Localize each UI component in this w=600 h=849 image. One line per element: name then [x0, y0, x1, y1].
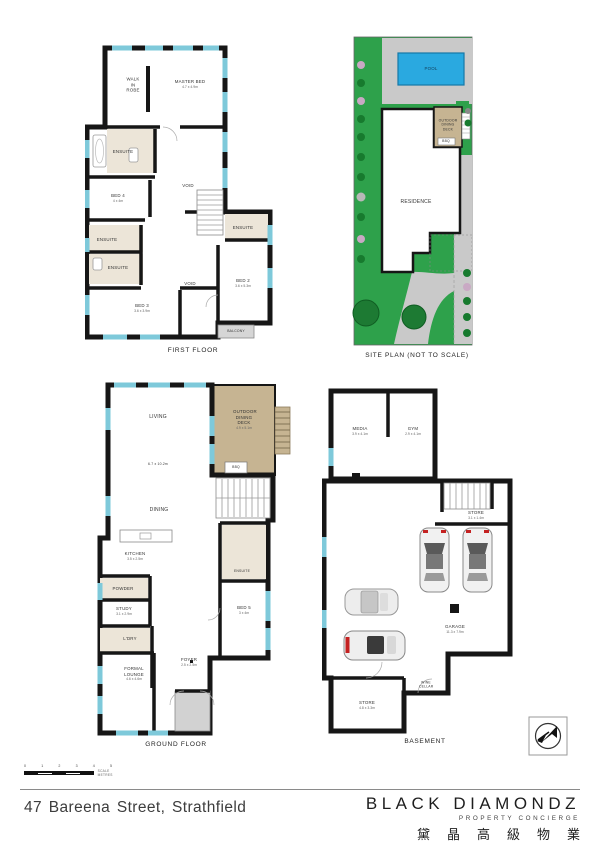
room-dim: 2.9 x 4.1m: [405, 432, 421, 436]
north-compass-icon: [528, 716, 568, 756]
scale-tick: 5: [110, 764, 112, 768]
room-label-master-bed: MASTER BED4.7 x 4.9m: [175, 79, 206, 89]
room-name: STUDY: [116, 606, 132, 611]
room-name: OUTDOOR DINING DECK: [233, 409, 257, 425]
room-label-study: STUDY3.1 x 2.9m: [116, 606, 132, 616]
room-label-gym: GYM2.9 x 4.1m: [405, 426, 421, 436]
car-icon: [345, 589, 398, 615]
bathtub-icon: [93, 135, 106, 167]
room-name: KITCHEN: [125, 551, 146, 556]
room-label-media: MEDIA3.9 x 4.1m: [352, 426, 368, 436]
room-dim: 4.9 x 5.1m: [233, 426, 255, 430]
sink-icon: [140, 533, 151, 539]
room-dim: 3.1 x 1.4m: [468, 516, 484, 520]
room-label-garage: GARAGE11.3 x 7.9m: [445, 624, 465, 634]
room-dim: 11.3 x 7.9m: [445, 630, 465, 634]
room-dim: 3.9 x 4.1m: [352, 432, 368, 436]
floor-plan-basement: MEDIA3.9 x 4.1m GYM2.9 x 4.1m STORE3.1 x…: [322, 382, 517, 742]
residence-label: RESIDENCE: [401, 199, 432, 206]
room-label-ensuite: ENSUITE: [97, 237, 117, 243]
caption-site-plan: SITE PLAN (NOT TO SCALE): [365, 352, 469, 359]
caption-first-floor: FIRST FLOOR: [168, 347, 219, 354]
scale-tick: 4: [93, 764, 95, 768]
room-label-balcony: BALCONY: [227, 329, 245, 333]
stairs: [197, 190, 223, 235]
caption-basement: BASEMENT: [404, 738, 445, 745]
brand-logo: BLACK DIAMONDZ PROPERTY CONCIERGE 黛晶高級物業: [366, 794, 580, 843]
room-dim: 3 x 4m: [237, 611, 251, 615]
room-dim: 3.6 x 5.3m: [235, 284, 251, 288]
floor-plan-first-floor: WALK IN ROBE MASTER BED4.7 x 4.9m ENSUIT…: [85, 40, 280, 340]
room-dim: 3.5 x 2.5m: [125, 557, 146, 561]
site-plan-drawing: [352, 35, 482, 347]
bbq-label: BBQ: [232, 465, 240, 469]
scale-bar-unit: SCALE METRES: [98, 769, 120, 777]
room-label-kitchen: KITCHEN3.5 x 2.5m: [125, 551, 146, 561]
room-dim: 2.5 x 2.5m: [181, 663, 197, 667]
room-name: GARAGE: [445, 624, 465, 629]
scale-tick: 1: [41, 764, 43, 768]
room-dim: 4 x 4m: [111, 199, 125, 203]
scale-bar: 0 1 2 3 4 5 SCALE METRES: [24, 764, 120, 777]
entry-porch: [175, 691, 210, 731]
room-label-deck: OUTDOOR DINING DECK4.9 x 5.1m: [233, 409, 255, 431]
room-label-walk-in-robe: WALK IN ROBE: [125, 76, 142, 93]
room-dim: 4.7 x 4.9m: [175, 85, 206, 89]
room-label-living: LIVING: [149, 414, 167, 421]
room-dim: 4.6 x 4.6m: [119, 678, 149, 682]
robe-shelving: [146, 66, 150, 112]
room-name: GYM: [408, 426, 419, 431]
room-dim: 3.1 x 2.9m: [116, 612, 132, 616]
room-label-ensuite: ENSUITE: [108, 265, 128, 271]
stairs: [216, 478, 270, 518]
brand-name: BLACK DIAMONDZ: [366, 794, 580, 814]
footer-divider: [20, 789, 580, 790]
room-label-bed3: BED 33.6 x 3.9m: [134, 303, 150, 313]
room-name: MASTER BED: [175, 79, 206, 84]
room-name: MEDIA: [353, 426, 368, 431]
scale-tick: 2: [58, 764, 60, 768]
room-name: FORMAL LOUNGE: [124, 666, 144, 677]
scale-tick: 3: [76, 764, 78, 768]
room-label-ensuite: ENSUITE: [113, 149, 133, 155]
car-icon: [463, 528, 492, 592]
scale-bar-rule: [24, 771, 94, 775]
scale-tick: 0: [24, 764, 26, 768]
room-dim-living: 6.7 x 10.2m: [148, 462, 168, 466]
room-label-bed5: BED 53 x 4m: [237, 605, 251, 615]
room-label-wine-cellar: WINE CELLAR: [419, 681, 433, 690]
room-label-store-upper: STORE3.1 x 1.4m: [468, 510, 484, 520]
room-label-void: VOID: [184, 281, 196, 287]
brand-chinese-name: 黛晶高級物業: [366, 824, 597, 843]
room-label-ensuite: ENSUITE: [234, 569, 250, 573]
brand-tagline: PROPERTY CONCIERGE: [366, 815, 580, 822]
stairs: [444, 483, 490, 509]
floor-plan-ground-floor: LIVING 6.7 x 10.2m DINING OUTDOOR DINING…: [92, 378, 302, 740]
room-label-dining: DINING: [150, 507, 169, 514]
column: [450, 604, 459, 613]
property-address: 47 Bareena Street, Strathfield: [24, 799, 246, 817]
room-label-bed2: BED 23.6 x 5.3m: [235, 278, 251, 288]
car-icon: [344, 631, 405, 660]
room-label-void: VOID: [182, 183, 194, 189]
deck-stairs: [275, 407, 290, 454]
pool-label: POOL: [424, 66, 437, 72]
room-label-formal-lounge: FORMAL LOUNGE4.6 x 4.6m: [119, 666, 149, 682]
room-name: BED 3: [135, 303, 149, 308]
room-dim: 3.6 x 3.9m: [134, 309, 150, 313]
room-label-ensuite: ENSUITE: [233, 225, 253, 231]
site-plan: POOL RESIDENCE OUTDOOR DINING DECK BBQ: [352, 35, 482, 347]
room-label-store-lower: STORE4.8 x 3.3m: [359, 700, 375, 710]
column: [352, 473, 360, 478]
room-name: STORE: [359, 700, 375, 705]
room-label-powder: POWDER: [113, 586, 134, 592]
toilet-icon: [93, 258, 102, 270]
room-dim: 4.8 x 3.3m: [359, 706, 375, 710]
room-name: BED 5: [237, 605, 251, 610]
caption-ground-floor: GROUND FLOOR: [145, 741, 207, 748]
room-name: BED 4: [111, 193, 125, 198]
scale-bar-ticks: 0 1 2 3 4 5: [24, 764, 112, 768]
room-label-bed4: BED 44 x 4m: [111, 193, 125, 203]
room-name: STORE: [468, 510, 484, 515]
deck-label: OUTDOOR DINING DECK: [438, 118, 458, 131]
bbq-label: BBQ: [442, 139, 450, 143]
room-label-foyer: FOYER2.5 x 2.5m: [181, 657, 197, 667]
ground-floor-drawing: [92, 378, 302, 740]
room-name: FOYER: [181, 657, 197, 662]
car-icon: [420, 528, 449, 592]
room-name: BED 2: [236, 278, 250, 283]
room-label-ldry: L'DRY: [123, 636, 136, 642]
